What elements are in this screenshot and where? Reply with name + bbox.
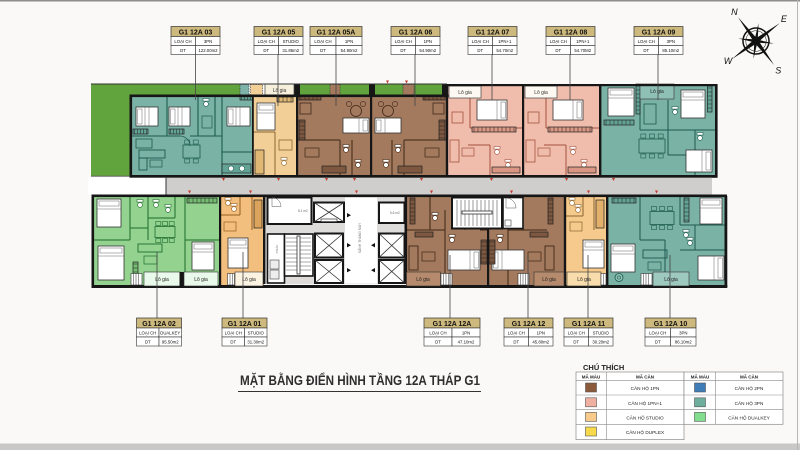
svg-text:DT: DT <box>400 48 406 53</box>
svg-text:LOẠI CH: LOẠI CH <box>638 39 655 44</box>
svg-text:G1 12A 12: G1 12A 12 <box>512 321 546 328</box>
svg-text:CĂN HỘ 1PN+1: CĂN HỘ 1PN+1 <box>628 400 662 406</box>
svg-text:E: E <box>781 14 788 24</box>
svg-text:N: N <box>731 7 738 17</box>
svg-text:Lô gia: Lô gia <box>242 277 256 283</box>
svg-text:LOẠI CH: LOẠI CH <box>550 39 567 44</box>
svg-text:CĂN HỘ DUPLEX: CĂN HỘ DUPLEX <box>626 429 665 435</box>
svg-text:6.6 m2: 6.6 m2 <box>390 211 400 215</box>
svg-text:DT: DT <box>655 340 661 345</box>
svg-text:DT: DT <box>573 340 579 345</box>
svg-text:MÃ CĂN: MÃ CĂN <box>636 374 654 380</box>
svg-text:Lô gia: Lô gia <box>664 277 678 283</box>
svg-text:MẶT BẰNG ĐIỂN HÌNH TẦNG 12A TH: MẶT BẰNG ĐIỂN HÌNH TẦNG 12A THÁP G1 <box>240 371 480 388</box>
svg-text:LOẠI CH: LOẠI CH <box>225 331 242 336</box>
svg-text:P.RÁC: P.RÁC <box>275 244 279 254</box>
svg-text:MÃ MÀU: MÃ MÀU <box>582 374 601 380</box>
svg-text:3PN: 3PN <box>667 39 675 44</box>
svg-text:SẢNH THANG MÁY: SẢNH THANG MÁY <box>357 222 362 253</box>
svg-text:DUALKEY: DUALKEY <box>160 331 180 336</box>
svg-text:DT: DT <box>145 340 151 345</box>
svg-text:MÃ CĂN: MÃ CĂN <box>740 374 758 380</box>
svg-text:54.70m2: 54.70m2 <box>496 48 513 53</box>
svg-text:DT: DT <box>435 340 441 345</box>
svg-text:G1 12A 08: G1 12A 08 <box>554 30 588 37</box>
svg-text:G1 12A 11: G1 12A 11 <box>572 321 605 328</box>
svg-text:3PN: 3PN <box>679 331 687 336</box>
svg-text:30.20m2: 30.20m2 <box>592 340 609 345</box>
svg-text:G1 12A 02: G1 12A 02 <box>142 321 176 328</box>
svg-text:G1 12A 03: G1 12A 03 <box>179 30 213 37</box>
svg-text:CĂN HỘ 2PN: CĂN HỘ 2PN <box>735 385 764 391</box>
svg-text:DT: DT <box>263 48 269 53</box>
svg-text:G1 12A 10: G1 12A 10 <box>654 321 688 328</box>
svg-text:Lô gia: Lô gia <box>534 90 548 96</box>
svg-text:1PN: 1PN <box>345 39 353 44</box>
svg-text:CĂN HỘ DUALKEY: CĂN HỘ DUALKEY <box>728 414 770 420</box>
svg-text:LOẠI CH: LOẠI CH <box>429 331 446 336</box>
svg-text:G1 12A 07: G1 12A 07 <box>476 30 510 37</box>
svg-text:Lô gia: Lô gia <box>542 277 556 283</box>
svg-text:1PN: 1PN <box>462 331 470 336</box>
svg-text:G1 12A 12A: G1 12A 12A <box>433 321 472 328</box>
svg-text:1PN+1: 1PN+1 <box>498 39 512 44</box>
svg-text:LOẠI CH: LOẠI CH <box>472 39 489 44</box>
svg-text:DT: DT <box>230 340 236 345</box>
svg-text:DT: DT <box>513 340 519 345</box>
svg-text:54.90m2: 54.90m2 <box>341 48 358 53</box>
svg-text:1PN: 1PN <box>537 331 545 336</box>
svg-text:86.10m2: 86.10m2 <box>675 340 692 345</box>
svg-text:LOẠI CH: LOẠI CH <box>395 39 412 44</box>
svg-text:1PN: 1PN <box>424 39 432 44</box>
svg-text:95.50m2: 95.50m2 <box>162 340 179 345</box>
svg-text:STUDIO: STUDIO <box>593 331 610 336</box>
svg-text:CĂN HỘ 3PN: CĂN HỘ 3PN <box>735 400 764 406</box>
svg-text:CĂN HỘ STUDIO: CĂN HỘ STUDIO <box>626 414 664 420</box>
svg-text:LOẠI CH: LOẠI CH <box>258 39 275 44</box>
svg-text:Lô gia: Lô gia <box>416 277 430 283</box>
svg-text:G1 12A 01: G1 12A 01 <box>228 321 262 328</box>
svg-text:Lô gia: Lô gia <box>194 277 208 283</box>
svg-text:LOẠI CH: LOẠI CH <box>174 39 191 44</box>
svg-text:1PN+1: 1PN+1 <box>576 39 590 44</box>
svg-text:G1 12A 05: G1 12A 05 <box>262 30 296 37</box>
svg-text:DT: DT <box>555 48 561 53</box>
svg-text:DT: DT <box>477 48 483 53</box>
svg-text:STUDIO: STUDIO <box>248 331 265 336</box>
svg-text:G1 12A 09: G1 12A 09 <box>642 30 676 37</box>
svg-text:Lô gia: Lô gia <box>650 89 664 95</box>
svg-text:DT: DT <box>320 48 326 53</box>
svg-text:MÃ MÀU: MÃ MÀU <box>691 374 710 380</box>
svg-text:STUDIO: STUDIO <box>283 39 300 44</box>
svg-text:LOẠI CH: LOẠI CH <box>568 331 585 336</box>
svg-text:3PN: 3PN <box>204 39 212 44</box>
svg-text:31.85m2: 31.85m2 <box>282 48 299 53</box>
svg-text:CĂN HỘ 1PN: CĂN HỘ 1PN <box>631 385 660 391</box>
svg-text:8.1 m2: 8.1 m2 <box>298 209 308 213</box>
svg-text:G1 12A 05A: G1 12A 05A <box>317 30 356 37</box>
svg-text:DT: DT <box>180 48 186 53</box>
svg-text:S: S <box>775 66 781 76</box>
svg-text:W: W <box>724 56 734 66</box>
svg-text:LOẠI CH: LOẠI CH <box>314 39 331 44</box>
svg-text:85.10m2: 85.10m2 <box>662 48 679 53</box>
svg-text:47.10m2: 47.10m2 <box>458 340 475 345</box>
svg-text:DT: DT <box>643 48 649 53</box>
svg-text:Lô gia: Lô gia <box>458 90 472 96</box>
svg-text:31.30m2: 31.30m2 <box>247 340 264 345</box>
svg-text:54.70M2: 54.70M2 <box>574 48 591 53</box>
svg-text:45.80m2: 45.80m2 <box>532 340 549 345</box>
svg-text:LOẠI CH: LOẠI CH <box>139 331 156 336</box>
svg-text:54.90m2: 54.90m2 <box>419 48 436 53</box>
svg-text:Lô gia: Lô gia <box>273 88 287 94</box>
svg-text:LOẠI CH: LOẠI CH <box>649 331 666 336</box>
svg-text:122.00m2: 122.00m2 <box>198 48 218 53</box>
svg-text:Lô gia: Lô gia <box>577 277 591 283</box>
svg-text:LOẠI CH: LOẠI CH <box>508 331 525 336</box>
svg-text:CHÚ THÍCH: CHÚ THÍCH <box>583 363 624 372</box>
svg-text:G1 12A 06: G1 12A 06 <box>399 30 433 37</box>
